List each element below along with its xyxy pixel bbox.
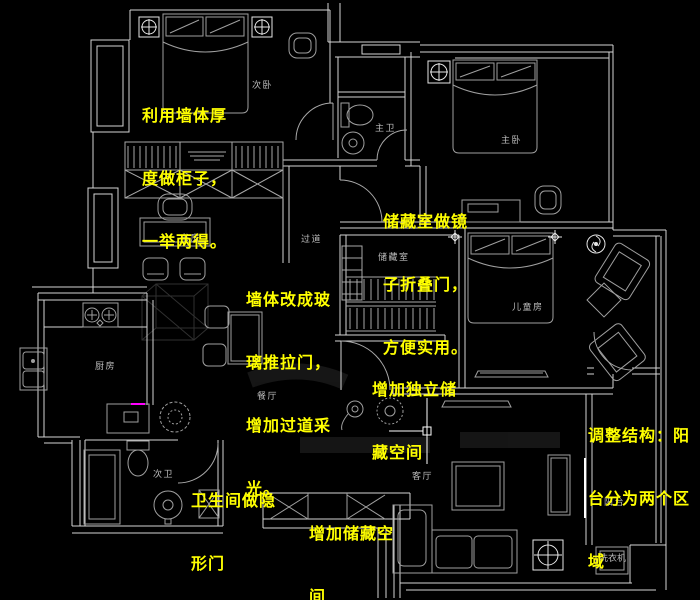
annotation-balcony-split: 调整结构：阳 台分为两个区 域 (588, 383, 690, 600)
annotation-line: 间 (309, 586, 394, 600)
flower-figure (342, 401, 363, 430)
dresser-master (462, 200, 520, 222)
room-label-kitchen: 厨房 (95, 362, 116, 372)
toilet-small (127, 441, 149, 476)
annotation-line: 台分为两个区 (588, 488, 690, 509)
ceiling-symbol (428, 61, 450, 83)
ceiling-symbol-living (533, 540, 563, 570)
shower (84, 450, 120, 524)
annotation-line: 卫生间做隐 (191, 490, 276, 511)
bed-master (453, 60, 537, 153)
annotation-line: 调整结构：阳 (588, 425, 690, 446)
room-label-corridor: 过道 (301, 235, 322, 245)
annotation-line: 度做柜子， (142, 168, 227, 189)
ceiling-symbol (252, 17, 272, 37)
room-label-master-bath: 主卫 (375, 124, 396, 134)
room-label-master-bedroom: 主卧 (501, 136, 522, 146)
door-master-bath (377, 130, 407, 160)
annotation-wall-cabinet: 利用墙体厚 度做柜子， 一举两得。 (142, 63, 227, 294)
annotation-line: 形门 (191, 553, 276, 574)
toilet-master (341, 103, 373, 127)
bath-sink (154, 491, 182, 524)
stool-secondary (289, 33, 316, 58)
side-table (548, 455, 570, 515)
dining-chairs (203, 306, 229, 366)
annotation-line: 增加独立储 (372, 379, 457, 400)
stove (83, 303, 118, 327)
coffee-table (452, 462, 504, 510)
door-storage (340, 180, 382, 222)
annotation-line: 子折叠门， (383, 274, 468, 295)
kitchen-cabinet (107, 404, 149, 433)
annotation-hidden-door: 卫生间做隐 形门 (191, 448, 276, 600)
door-bedroom2 (296, 103, 333, 140)
annotation-line: 储藏室做镜 (383, 211, 468, 232)
room-label-small-bath: 次卫 (153, 470, 174, 480)
sofa-living (393, 505, 517, 573)
annotation-independent-storage: 增加独立储 藏空间 (372, 337, 457, 505)
annotation-line: 增加过道采 (246, 415, 331, 436)
kitchen-sink (20, 348, 47, 390)
annotation-line: 藏空间 (372, 442, 457, 463)
annotation-line: 璃推拉门， (246, 352, 331, 373)
annotation-line: 增加储藏空 (309, 523, 394, 544)
chair-master (535, 186, 561, 214)
room-label-kids-room: 儿童房 (512, 303, 544, 313)
annotation-line: 一举两得。 (142, 231, 227, 252)
sink-master (342, 132, 364, 154)
annotation-line: 利用墙体厚 (142, 105, 227, 126)
annotation-line: 墙体改成玻 (246, 289, 331, 310)
plant-1 (160, 402, 190, 432)
tv-bench-kids (475, 371, 548, 377)
armchair-2 (587, 322, 647, 383)
ceiling-symbol (139, 17, 159, 37)
cad-application-canvas: 次卧 主卫 主卧 书房 过道 储藏室 儿童房 厨房 餐厅 客厅 次卫 阳台 洗衣… (0, 0, 700, 600)
room-label-secondary-bedroom: 次卧 (252, 81, 273, 91)
lounge-table (587, 283, 621, 317)
annotation-line: 域 (588, 551, 690, 572)
annotation-add-storage: 增加储藏空 间 (309, 481, 394, 600)
fan-symbol (587, 235, 605, 253)
